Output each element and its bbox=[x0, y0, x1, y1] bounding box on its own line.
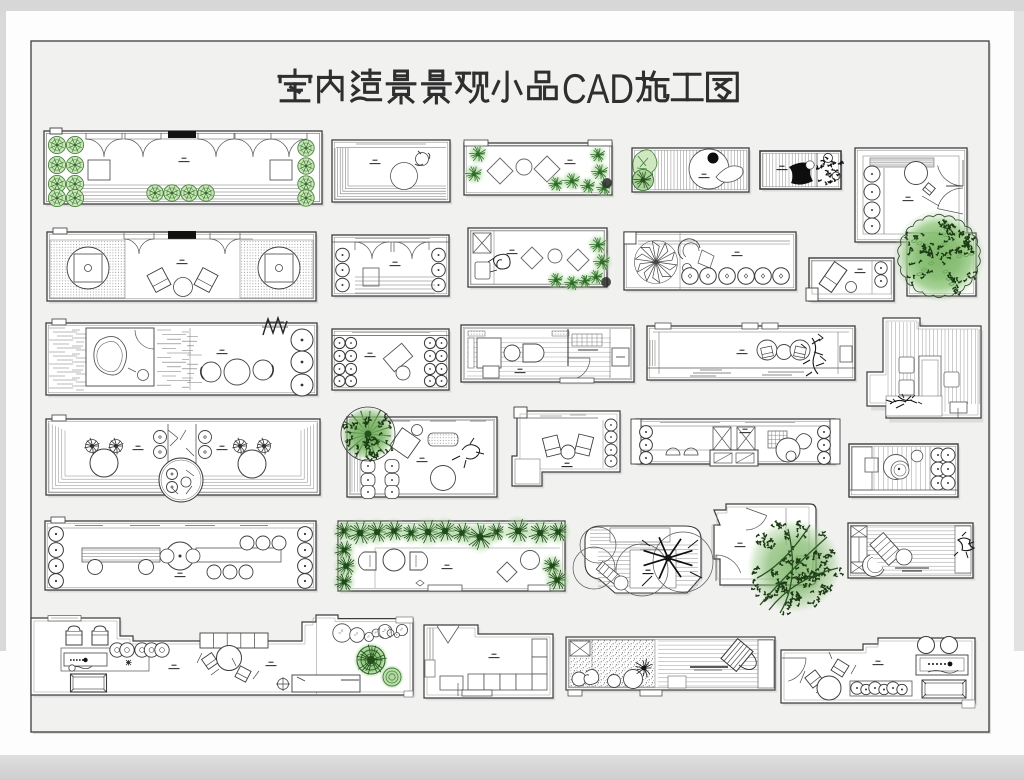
svg-text:CAD: CAD bbox=[562, 65, 634, 112]
